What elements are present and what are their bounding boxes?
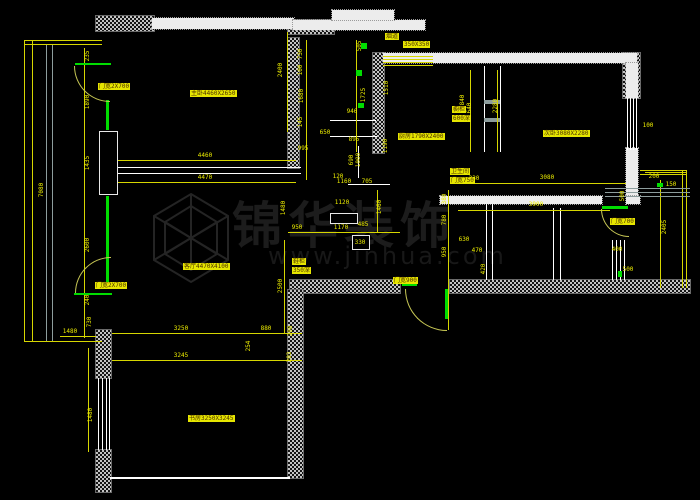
- watermark-logo-icon: [152, 192, 230, 284]
- dimension-label: 950: [292, 225, 303, 231]
- door-swing-arc: [405, 289, 447, 331]
- furniture-box: [330, 213, 358, 224]
- partition-line: [102, 378, 103, 450]
- room-label: 卫生间: [450, 168, 470, 175]
- dimension-line: [112, 333, 302, 334]
- window-door-green: [74, 293, 112, 295]
- dimension-line: [24, 40, 25, 342]
- dimension-label: 730: [87, 317, 93, 328]
- window-door-green: [657, 183, 663, 187]
- dimension-label: 1160: [337, 179, 351, 185]
- window-frame-line: [605, 188, 690, 189]
- room-label: 烟道: [385, 33, 399, 40]
- room-label: 600深: [452, 115, 471, 122]
- dimension-line: [60, 336, 96, 337]
- dimension-label: 4470: [198, 175, 212, 181]
- dimension-line: [32, 40, 33, 342]
- dimension-label: 100: [298, 65, 304, 76]
- window-door-green: [75, 63, 111, 65]
- room-label: 客厅4470X4100: [183, 263, 230, 270]
- dimension-line: [24, 40, 102, 41]
- dimension-label: 145: [298, 117, 304, 128]
- dimension-label: 4460: [198, 153, 212, 159]
- dimension-label: 330: [355, 240, 366, 246]
- dimension-line: [458, 210, 610, 211]
- dimension-label: 1480: [281, 201, 287, 215]
- dimension-label: 3250: [174, 326, 188, 332]
- partition-line: [627, 98, 628, 150]
- dimension-label: 7080: [39, 183, 45, 197]
- window-frame-line: [46, 45, 47, 341]
- dimension-label: 1000: [356, 153, 362, 167]
- dimension-line: [383, 65, 433, 66]
- partition-line: [484, 66, 485, 152]
- dimension-label: 1480: [88, 408, 94, 422]
- partition-line: [633, 98, 634, 150]
- floorplan-canvas[interactable]: 锦华装饰 www.jinhua.com 70802351890143526002…: [0, 0, 700, 500]
- dimension-line: [24, 44, 102, 45]
- window-frame-line: [52, 45, 53, 341]
- partition-line: [330, 120, 376, 121]
- dimension-label: 640: [467, 103, 473, 114]
- dimension-label: 100: [643, 123, 654, 129]
- furniture-box: [99, 131, 118, 195]
- dimension-label: 880: [261, 326, 272, 332]
- dimension-line: [458, 183, 626, 184]
- partition-line: [500, 66, 501, 152]
- dimension-label: 2600: [85, 238, 91, 252]
- room-label: 350X350: [403, 41, 430, 48]
- wall-hatch-segment: [288, 290, 303, 478]
- door-swing-arc: [601, 209, 629, 237]
- dimension-label: 2500: [278, 279, 284, 293]
- dimension-line: [640, 170, 687, 171]
- dimension-label: 1510: [384, 81, 390, 95]
- dimension-label: 3245: [174, 353, 188, 359]
- dimension-line: [448, 190, 449, 330]
- dimension-label: 500: [620, 191, 626, 202]
- dimension-line: [306, 40, 307, 180]
- room-label: 主卧4460X2650: [190, 90, 237, 97]
- dimension-label: 470: [472, 248, 483, 254]
- dimension-label: 203: [287, 352, 293, 363]
- dimension-label: 705: [362, 179, 373, 185]
- wall-segment: [626, 196, 640, 204]
- window-door-green: [106, 100, 109, 130]
- room-label: 橱柜: [452, 106, 466, 113]
- dimension-label: 780: [442, 215, 448, 226]
- wall-segment: [152, 18, 294, 29]
- dimension-label: 400: [612, 247, 623, 253]
- dimension-label: 650: [320, 130, 331, 136]
- dimension-label: 1190: [383, 139, 389, 153]
- partition-line: [110, 477, 290, 479]
- partition-line: [109, 378, 110, 450]
- wall-hatch-segment: [450, 280, 690, 293]
- dimension-label: 2405: [662, 220, 668, 234]
- dimension-label: 1120: [335, 200, 349, 206]
- wall-segment: [440, 196, 602, 204]
- dimension-label: 1680: [299, 89, 305, 103]
- dimension-label: 1435: [85, 156, 91, 170]
- dimension-label: 2400: [278, 63, 284, 77]
- door-swing-arc: [75, 257, 111, 293]
- window-door-green: [402, 284, 417, 286]
- dimension-label: 1460: [377, 200, 383, 214]
- room-label: 350深: [292, 267, 311, 274]
- dimension-label: 1725: [361, 88, 367, 102]
- dimension-line: [640, 174, 687, 175]
- door-swing-arc: [74, 66, 110, 102]
- wall-segment: [293, 20, 425, 30]
- dimension-label: 730: [298, 49, 304, 60]
- dimension-label: 995: [298, 146, 309, 152]
- dimension-label: 254: [246, 341, 252, 352]
- window-door-green: [358, 103, 364, 108]
- window-frame-line: [605, 192, 690, 193]
- dimension-label: 946: [347, 109, 358, 115]
- partition-line: [553, 208, 554, 280]
- dimension-label: 3900: [529, 202, 543, 208]
- partition-line: [636, 98, 637, 150]
- dimension-label: 505: [357, 41, 363, 52]
- wall-segment: [332, 10, 394, 20]
- wall-hatch-segment: [290, 280, 400, 293]
- dimension-line: [118, 160, 296, 161]
- dimension-line: [287, 32, 288, 132]
- room-label: 厨房1790X2400: [398, 133, 445, 140]
- dimension-label: 208: [288, 326, 294, 337]
- partition-line: [630, 98, 631, 150]
- dimension-label: 840: [460, 95, 466, 106]
- partition-line: [106, 378, 107, 450]
- dimension-label: 1890: [85, 95, 91, 109]
- wall-segment: [626, 148, 638, 198]
- wall-hatch-segment: [96, 16, 154, 31]
- dimension-line: [383, 56, 433, 57]
- dimension-label: 150: [666, 182, 677, 188]
- room-label: 门宽750: [450, 177, 475, 184]
- partition-line: [115, 167, 301, 168]
- window-door-green: [356, 70, 362, 76]
- dimension-label: 950: [442, 247, 448, 258]
- room-label: 书房3250X3245: [188, 415, 235, 422]
- dimension-label: 895: [349, 137, 360, 143]
- partition-line: [624, 240, 625, 280]
- room-label: 次卧3080X2280: [543, 130, 590, 137]
- partition-line: [560, 208, 561, 280]
- dimension-line: [383, 59, 433, 60]
- dimension-label: 630: [459, 237, 470, 243]
- window-frame-line: [605, 196, 690, 197]
- dimension-line: [88, 348, 89, 452]
- dimension-label: 240: [85, 295, 91, 306]
- wall-hatch-segment: [96, 450, 111, 492]
- dimension-label: 1480: [63, 329, 77, 335]
- dimension-label: 200: [649, 174, 660, 180]
- dimension-line: [284, 240, 285, 333]
- dimension-label: 500: [623, 267, 634, 273]
- dimension-label: 485: [358, 222, 369, 228]
- partition-line: [98, 378, 99, 450]
- window-door-green: [618, 271, 622, 277]
- dimension-line: [24, 341, 102, 342]
- dimension-label: 380: [442, 194, 448, 205]
- partition-line: [492, 204, 493, 280]
- dimension-line: [112, 360, 302, 361]
- dimension-line: [288, 232, 400, 233]
- room-label: 门宽900: [393, 277, 418, 284]
- dimension-line: [118, 182, 296, 183]
- dimension-label: 1170: [334, 225, 348, 231]
- dimension-line: [383, 62, 433, 63]
- dimension-label: 420: [481, 264, 487, 275]
- dimension-label: 3080: [540, 175, 554, 181]
- dimension-label: 235: [85, 51, 91, 62]
- dimension-label: 2280: [493, 99, 499, 113]
- wall-hatch-segment: [96, 330, 111, 378]
- room-label: 鞋柜: [292, 258, 306, 265]
- wall-segment: [626, 63, 638, 98]
